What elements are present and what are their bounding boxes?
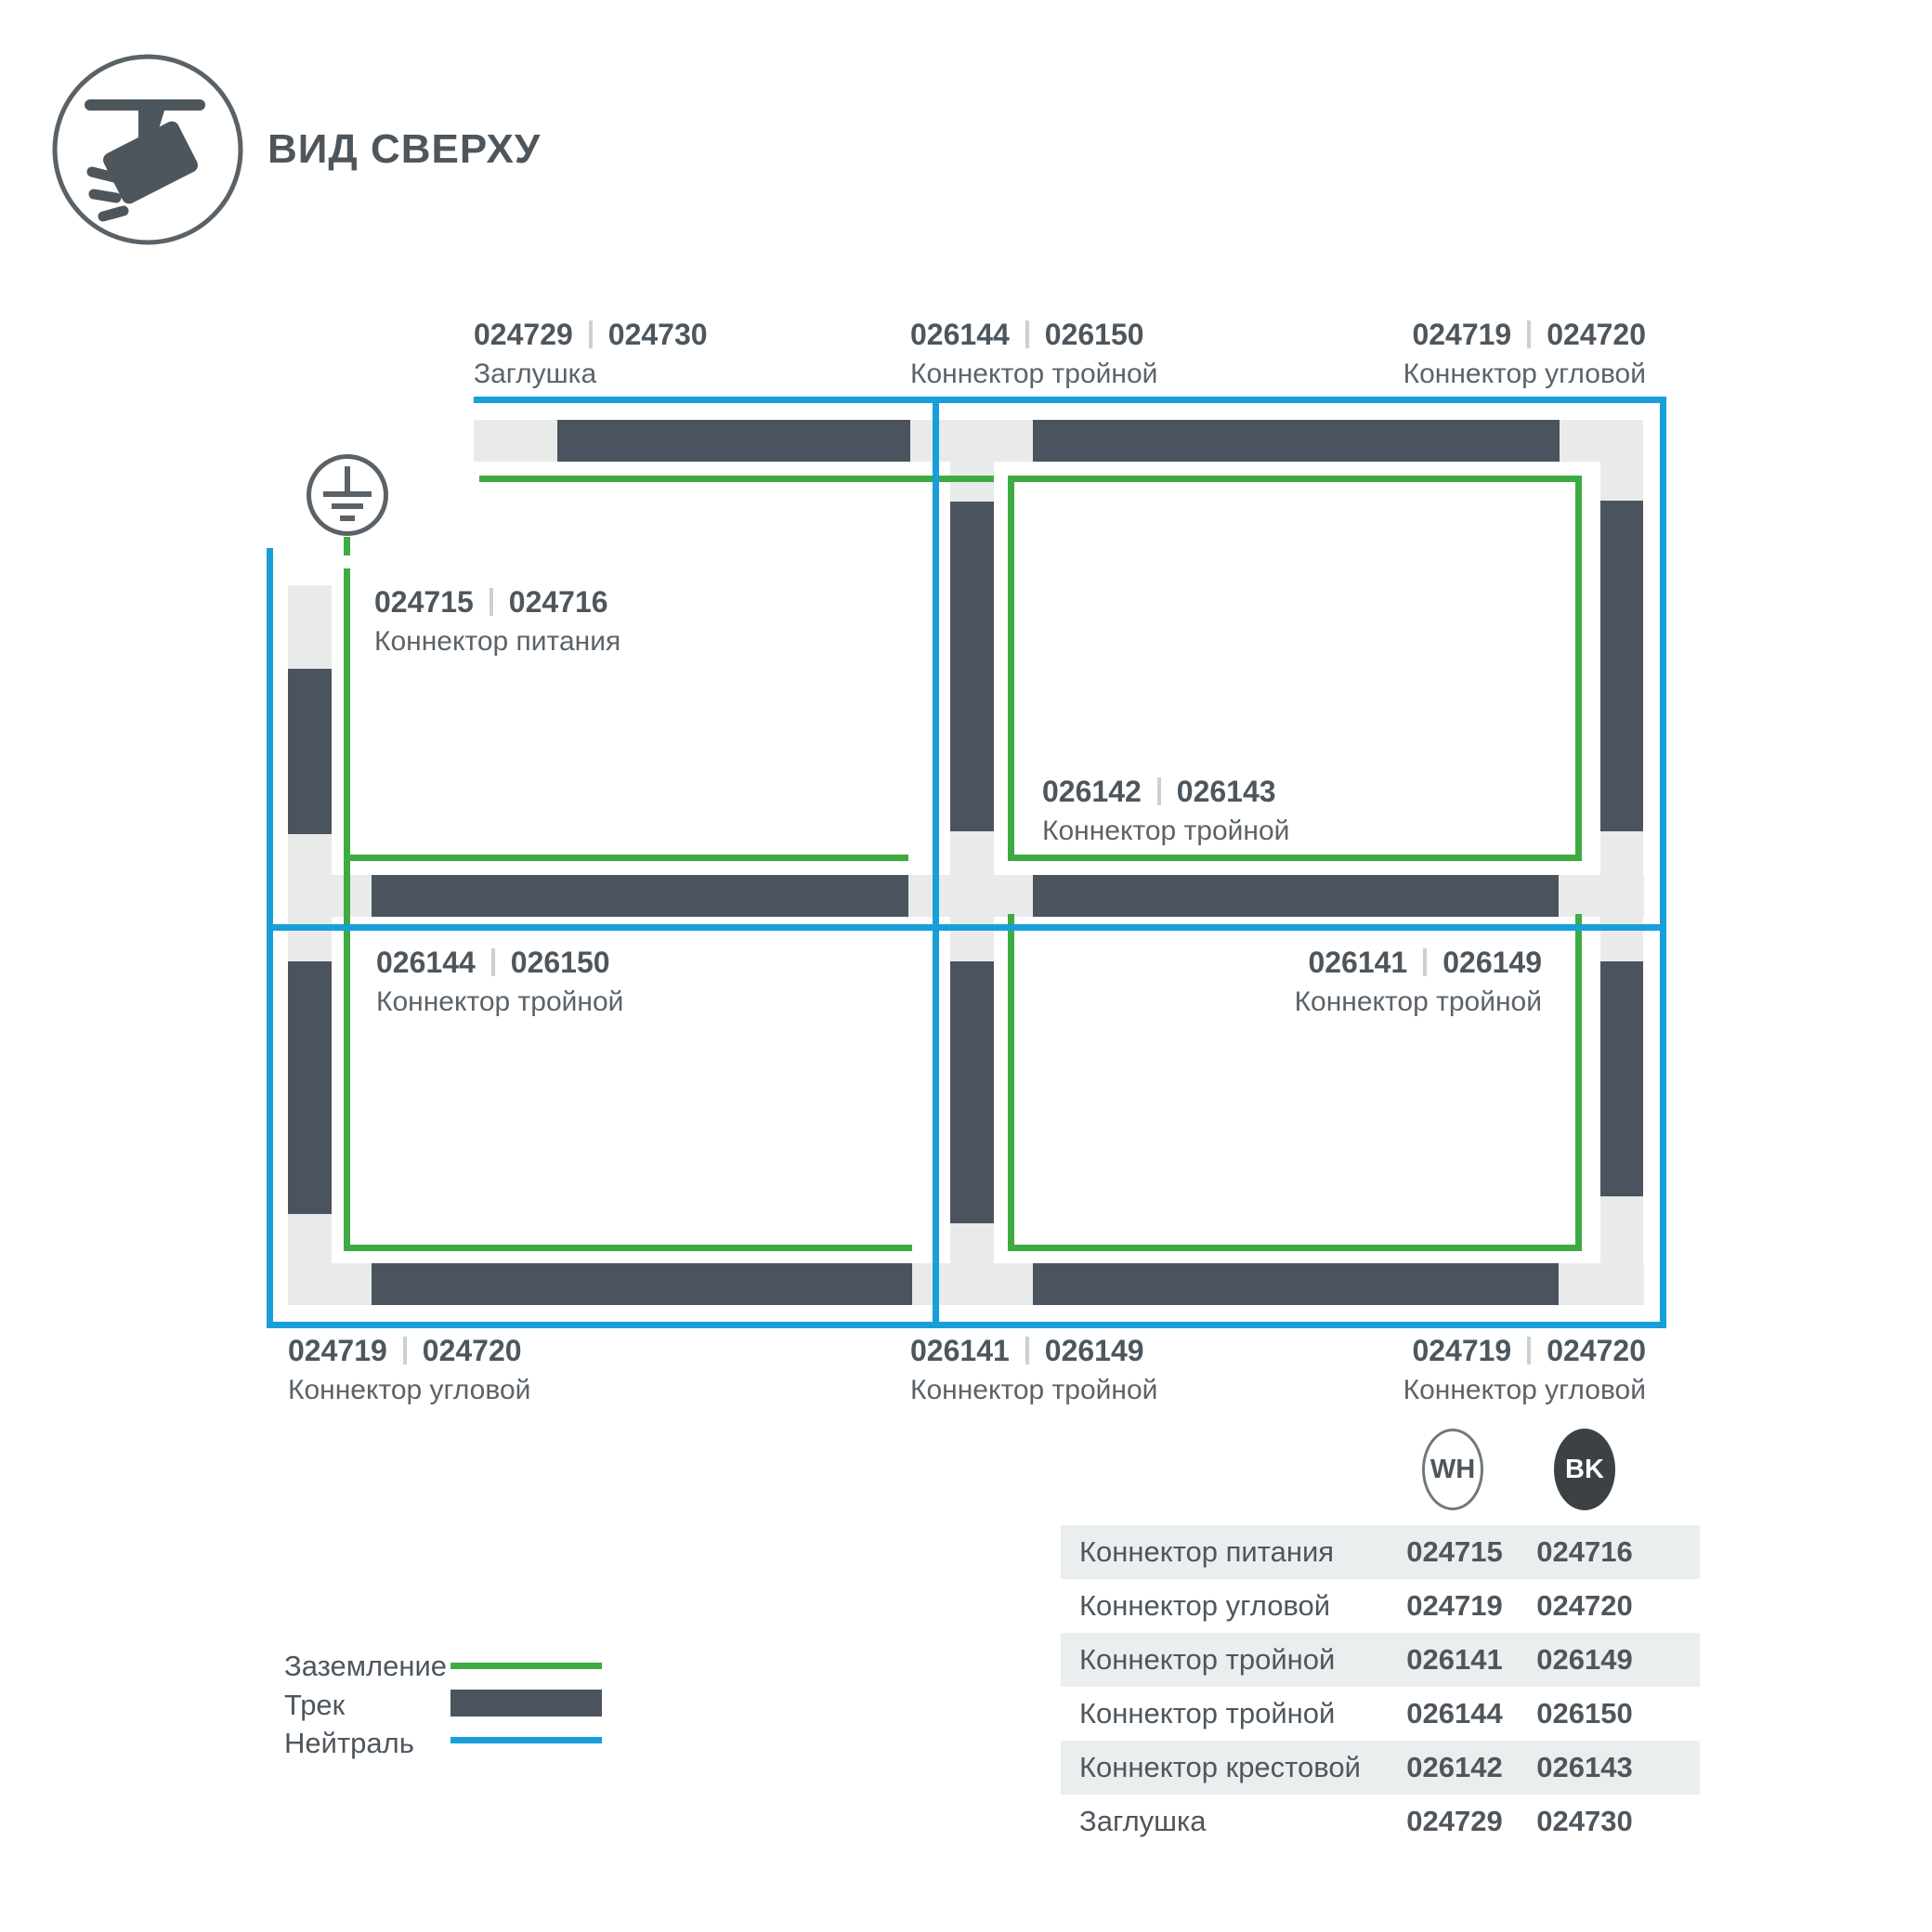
connector-corner-top-right-stub [1600, 462, 1643, 503]
connector-t-left [288, 875, 372, 917]
code-divider [490, 588, 493, 616]
label-t-connector-top: 026144026150 Коннектор тройной [910, 318, 1157, 390]
legend-label-ground: Заземление [284, 1650, 447, 1683]
earth-ground-icon [307, 454, 388, 536]
code-bk: 024720 [423, 1334, 522, 1367]
part-name-cell: Коннектор тройной [1061, 1697, 1390, 1730]
connector-t-right-stub [1600, 831, 1643, 963]
code-wh: 024719 [1412, 318, 1511, 351]
code-bk: 026150 [511, 946, 610, 979]
part-name-cell: Коннектор крестовой [1061, 1751, 1390, 1784]
part-name-cell: Коннектор тройной [1061, 1643, 1390, 1677]
code-wh: 024729 [474, 318, 573, 351]
neutral-line-bottom [267, 1322, 1666, 1328]
ground-line-bottomleft-bottom [344, 1245, 912, 1251]
connector-t-top [910, 420, 1033, 462]
track-segment [950, 502, 994, 831]
code-bk: 026150 [1045, 318, 1144, 351]
code-bk-cell: 026143 [1520, 1751, 1650, 1784]
code-divider [1423, 948, 1427, 976]
track-segment [288, 669, 332, 834]
connector-cross-middle-stub [950, 831, 994, 963]
ground-line-topleft-bottom [346, 855, 908, 861]
part-name: Коннектор тройной [910, 1375, 1157, 1406]
neutral-line-middle-vertical [933, 397, 939, 1328]
table-row: Коннектор тройной 026144 026150 [1061, 1687, 1700, 1741]
track-segment [1600, 501, 1643, 831]
code-bk: 024716 [509, 585, 608, 619]
code-divider [403, 1337, 407, 1364]
connector-corner-bottom-left [288, 1263, 372, 1305]
code-wh: 024719 [288, 1334, 387, 1367]
code-divider [589, 320, 593, 348]
part-name: Коннектор тройной [1295, 986, 1542, 1018]
code-divider [1025, 320, 1029, 348]
part-name: Коннектор тройной [1042, 816, 1289, 847]
code-bk: 024730 [608, 318, 708, 351]
code-bk: 026143 [1177, 775, 1276, 808]
connector-endcap-top [474, 420, 557, 462]
code-bk: 026149 [1045, 1334, 1144, 1367]
ground-line-topleft-top [479, 476, 994, 482]
code-bk-cell: 024730 [1520, 1805, 1650, 1838]
page: ВИД СВЕРХУ 02 [0, 0, 1932, 1932]
color-badge-white: WH [1422, 1429, 1483, 1510]
legend-label-track: Трек [284, 1689, 345, 1722]
legend-swatch-track-bar [450, 1690, 602, 1717]
label-corner-bottom-right: 024719024720 Коннектор угловой [1403, 1334, 1646, 1406]
legend-label-neutral: Нейтраль [284, 1727, 414, 1760]
label-power-connector: 024715024716 Коннектор питания [374, 585, 620, 658]
part-name-cell: Заглушка [1061, 1805, 1390, 1838]
track-segment [288, 961, 332, 1214]
part-name: Коннектор угловой [1403, 359, 1646, 390]
label-corner-bottom-left: 024719024720 Коннектор угловой [288, 1334, 530, 1406]
code-bk: 024720 [1547, 1334, 1646, 1367]
label-cross-connector: 026142026143 Коннектор тройной [1042, 775, 1289, 847]
ground-line-dashed [344, 537, 350, 587]
code-wh: 026141 [1308, 946, 1407, 979]
part-name: Коннектор угловой [1403, 1375, 1646, 1406]
code-divider [1527, 1337, 1531, 1364]
code-divider [1157, 777, 1161, 805]
code-divider [1025, 1337, 1029, 1364]
connector-corner-top-right [1560, 420, 1643, 462]
code-wh-cell: 024715 [1390, 1535, 1520, 1569]
part-name: Коннектор угловой [288, 1375, 530, 1406]
color-badge-black: BK [1554, 1429, 1615, 1510]
table-row: Коннектор крестовой 026142 026143 [1061, 1741, 1700, 1795]
neutral-line-left [267, 548, 273, 1328]
legend-swatch-ground-line [450, 1663, 602, 1669]
connector-t-bottom [912, 1263, 1033, 1305]
track-segment [1600, 961, 1643, 1196]
legend-swatch-neutral-line [450, 1737, 602, 1743]
code-divider [1527, 320, 1531, 348]
code-wh: 026144 [376, 946, 476, 979]
track-segment [557, 420, 910, 462]
track-segment [372, 1263, 912, 1305]
code-wh: 026144 [910, 318, 1010, 351]
page-title: ВИД СВЕРХУ [268, 126, 541, 173]
code-wh-cell: 024729 [1390, 1805, 1520, 1838]
part-name: Коннектор тройной [910, 359, 1157, 390]
code-bk-cell: 024720 [1520, 1589, 1650, 1623]
code-bk-cell: 024716 [1520, 1535, 1650, 1569]
code-wh-cell: 026144 [1390, 1697, 1520, 1730]
code-wh-cell: 024719 [1390, 1589, 1520, 1623]
part-table: Коннектор питания 024715 024716 Коннекто… [1061, 1525, 1700, 1848]
code-wh-cell: 026141 [1390, 1643, 1520, 1677]
label-t-connector-left: 026144026150 Коннектор тройной [376, 946, 623, 1018]
connector-t-top-stub [950, 462, 994, 503]
code-wh: 024719 [1412, 1334, 1511, 1367]
table-row: Коннектор угловой 024719 024720 [1061, 1579, 1700, 1633]
table-row: Коннектор тройной 026141 026149 [1061, 1633, 1700, 1687]
table-row: Коннектор питания 024715 024716 [1061, 1525, 1700, 1579]
code-wh-cell: 026142 [1390, 1751, 1520, 1784]
neutral-line-right [1660, 397, 1666, 1328]
connector-corner-bottom-right [1559, 1263, 1644, 1305]
table-row: Заглушка 024729 024730 [1061, 1795, 1700, 1848]
track-segment [1033, 420, 1560, 462]
part-name-cell: Коннектор угловой [1061, 1589, 1390, 1623]
code-wh: 026141 [910, 1334, 1010, 1367]
code-bk: 024720 [1547, 318, 1646, 351]
code-divider [491, 948, 495, 976]
code-bk-cell: 026149 [1520, 1643, 1650, 1677]
label-t-connector-right: 026141026149 Коннектор тройной [1295, 946, 1542, 1018]
part-name: Коннектор тройной [376, 986, 623, 1018]
label-endcap-top: 024729024730 Заглушка [474, 318, 708, 390]
track-segment [1033, 1263, 1559, 1305]
track-spotlight-icon [51, 53, 244, 246]
code-wh: 026142 [1042, 775, 1142, 808]
ground-line-left [344, 585, 350, 1251]
track-segment [950, 961, 994, 1223]
connector-power-entry [288, 585, 332, 669]
neutral-line-middle-horizontal [267, 924, 1666, 931]
code-bk-cell: 026150 [1520, 1697, 1650, 1730]
part-name: Коннектор питания [374, 626, 620, 658]
code-wh: 024715 [374, 585, 474, 619]
label-corner-top-right: 024719024720 Коннектор угловой [1403, 318, 1646, 390]
label-t-connector-bottom: 026141026149 Коннектор тройной [910, 1334, 1157, 1406]
part-name-cell: Коннектор питания [1061, 1535, 1390, 1569]
track-segment [372, 875, 908, 917]
neutral-line-top [474, 397, 1666, 403]
code-bk: 026149 [1442, 946, 1542, 979]
part-name: Заглушка [474, 359, 708, 390]
track-segment [1033, 875, 1559, 917]
